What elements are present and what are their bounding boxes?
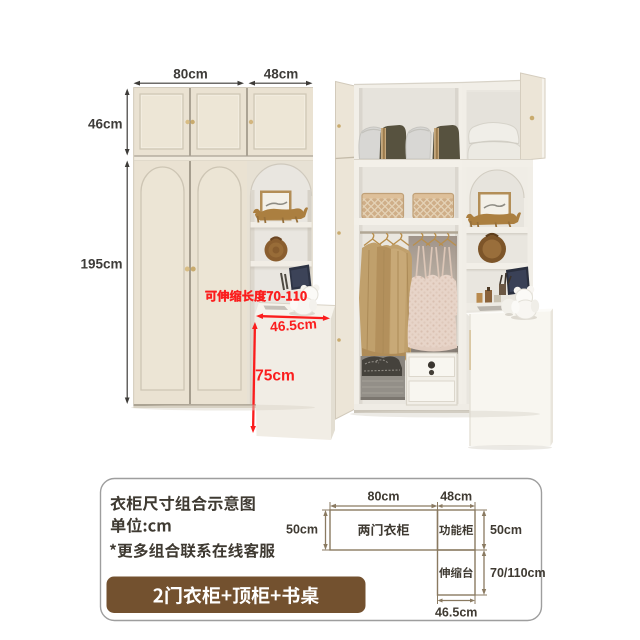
svg-text:48cm: 48cm bbox=[264, 67, 299, 82]
svg-text:48cm: 48cm bbox=[440, 490, 472, 504]
svg-text:80cm: 80cm bbox=[173, 67, 208, 82]
svg-text:75cm: 75cm bbox=[255, 368, 295, 385]
svg-text:195cm: 195cm bbox=[80, 257, 122, 272]
svg-text:80cm: 80cm bbox=[368, 490, 400, 504]
svg-text:46.5cm: 46.5cm bbox=[435, 606, 477, 620]
svg-text:50cm: 50cm bbox=[490, 523, 522, 537]
svg-text:70/110cm: 70/110cm bbox=[490, 566, 546, 580]
svg-text:46cm: 46cm bbox=[88, 116, 123, 131]
svg-text:50cm: 50cm bbox=[286, 523, 318, 537]
